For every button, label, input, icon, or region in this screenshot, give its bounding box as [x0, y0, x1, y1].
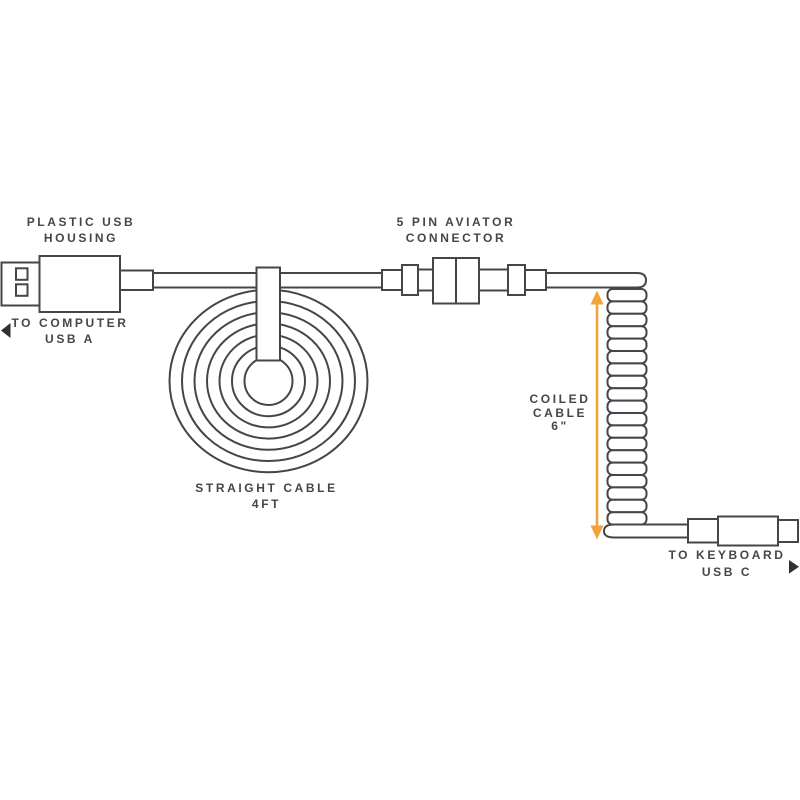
usb-a-strain-relief [120, 271, 153, 291]
aviator-connector [382, 258, 546, 304]
coil-loop [608, 512, 647, 524]
usb-a-plastic-housing [40, 256, 121, 312]
aviator-neck-left [418, 270, 433, 291]
coil-loop [608, 376, 647, 388]
arrow-head-down-icon [591, 526, 604, 540]
label-line: USB C [647, 564, 800, 581]
label-line: TO KEYBOARD [647, 547, 800, 564]
label-line: COILED [480, 393, 640, 407]
coil-loop [608, 463, 647, 475]
usb-c-connector [688, 517, 798, 546]
coil-loop [608, 363, 647, 375]
label-line: 4FT [186, 497, 347, 513]
coil-loop [608, 438, 647, 450]
label-to-keyboard-usb-c: TO KEYBOARD USB C [647, 547, 800, 580]
usb-c-housing [718, 517, 778, 546]
label-line: STRAIGHT CABLE [186, 481, 347, 497]
label-5-pin-aviator-connector: 5 PIN AVIATOR CONNECTOR [375, 215, 537, 246]
bottom-cable-line [604, 525, 692, 538]
coil-loop [608, 351, 647, 363]
label-line: CABLE [480, 407, 640, 421]
label-straight-cable-4ft: STRAIGHT CABLE 4FT [186, 481, 347, 512]
arrow-head-up-icon [591, 291, 604, 305]
coil-loop [608, 500, 647, 512]
usb-c-plug-tip [778, 520, 798, 542]
coil-loop [608, 450, 647, 462]
coil-loop [608, 326, 647, 338]
coil-loop [608, 301, 647, 313]
cable-diagram: PLASTIC USB HOUSING TO COMPUTER USB A 5 … [0, 0, 800, 800]
coil-loop [608, 487, 647, 499]
aviator-boot-right [525, 270, 546, 290]
aviator-nut-left [402, 265, 418, 295]
aviator-neck-right [479, 270, 508, 291]
label-coiled-cable-6in: COILED CABLE 6" [480, 393, 640, 434]
label-line: 6" [480, 420, 640, 434]
coil-loop [608, 339, 647, 351]
aviator-nut-right [508, 265, 525, 295]
cable-strap [257, 268, 281, 361]
cable-diagram-drawing [0, 0, 800, 800]
coil-ring [245, 357, 293, 405]
label-line: USB A [2, 332, 138, 348]
aviator-boot-left [382, 270, 402, 290]
coil-loop [608, 475, 647, 487]
usb-a-connector [2, 256, 154, 312]
coil-loop [608, 314, 647, 326]
label-line: HOUSING [0, 231, 162, 247]
usb-a-pin-hole [16, 284, 28, 296]
label-line: PLASTIC USB [0, 215, 162, 231]
label-line: 5 PIN AVIATOR [375, 215, 537, 231]
label-plastic-usb-housing: PLASTIC USB HOUSING [0, 215, 162, 246]
label-line: CONNECTOR [375, 231, 537, 247]
usb-a-pin-hole [16, 268, 28, 280]
coil-loop [608, 289, 647, 301]
usb-c-strain-relief [688, 519, 718, 543]
label-to-computer-usb-a: TO COMPUTER USB A [2, 316, 138, 347]
label-line: TO COMPUTER [2, 316, 138, 332]
